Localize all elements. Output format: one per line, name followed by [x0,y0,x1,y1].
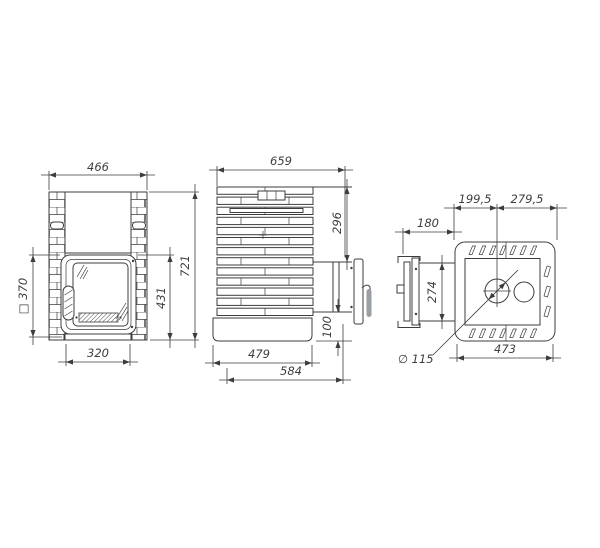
door-corner-dot [131,326,133,328]
flue-collar-side [258,191,285,200]
dim-side-base-height: 100 [320,316,334,338]
dim-front-door-section-height: 431 [154,287,168,309]
side-door-plate [354,259,363,324]
vent-screw-dot [75,316,77,318]
dim-front-overall-width: 466 [87,160,109,174]
vent-screw-dot [119,316,121,318]
dim-top-flue-diameter: ∅ 115 [398,352,434,366]
dim-top-door-projection: 180 [417,216,439,230]
hinge-dot [415,268,417,270]
side-inset-band [230,209,303,213]
top-view: 199,5 279,5 180 274 473 ∅ 115 [395,192,567,366]
dim-top-flue-to-front: 279,5 [511,192,544,206]
door-handle [63,286,74,320]
side-door-assembly [313,259,372,324]
column-vent-slot [51,222,64,229]
dim-top-rear-to-flue: 199,5 [459,192,492,206]
dim-side-top-to-door: 296 [330,212,344,234]
dim-front-overall-height: 721 [178,255,192,277]
side-casing-slats [217,187,313,316]
dim-top-body-depth: 473 [494,342,516,356]
top-door-frame-plate [404,262,410,321]
drawing-sheet: 466 □ 370 431 721 320 [0,0,600,548]
door-corner-dot [132,260,134,262]
dim-side-base-depth: 479 [248,347,270,361]
dim-side-overall-depth: 659 [270,154,292,168]
column-vent-slot [133,222,146,229]
door-vent-strip [79,313,118,322]
dim-front-base-width: 320 [87,346,109,360]
hinge-dot [350,267,352,269]
hinge-dot [415,313,417,315]
side-door-handle [367,289,372,317]
dim-front-door-square: □ 370 [16,278,30,314]
top-handle-mount [397,285,404,293]
dim-side-overall-depth-with-handle: 584 [280,364,302,378]
dim-top-door-width: 274 [425,281,439,303]
front-door [61,255,136,334]
front-view: 466 □ 370 431 721 320 [16,160,199,366]
side-view: 659 296 100 479 584 [205,154,372,384]
hinge-dot [350,306,352,308]
side-base [213,318,312,341]
front-base [64,334,132,340]
technical-drawing: 466 □ 370 431 721 320 [0,0,600,548]
